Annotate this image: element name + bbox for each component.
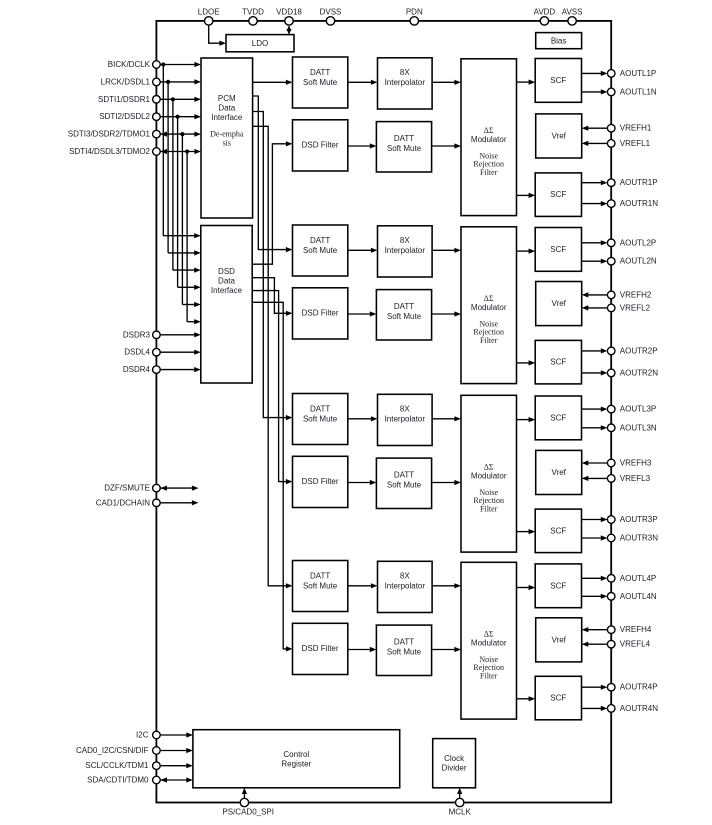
- svg-text:AOUTL1P: AOUTL1P: [620, 69, 656, 78]
- svg-text:Soft Mute: Soft Mute: [387, 480, 422, 489]
- svg-text:Interpolator: Interpolator: [385, 415, 426, 424]
- svg-text:Soft Mute: Soft Mute: [303, 246, 338, 255]
- svg-text:BICK/DCLK: BICK/DCLK: [108, 60, 151, 69]
- svg-text:Modulator: Modulator: [471, 471, 507, 480]
- svg-text:VREFH1: VREFH1: [620, 124, 652, 133]
- svg-text:VREFL2: VREFL2: [620, 303, 651, 312]
- svg-text:DATT: DATT: [394, 134, 414, 143]
- svg-text:AOUTL4P: AOUTL4P: [620, 574, 656, 583]
- svg-text:VDD18: VDD18: [276, 8, 302, 17]
- svg-text:Data: Data: [218, 104, 235, 113]
- svg-text:DZF/SMUTE: DZF/SMUTE: [104, 484, 150, 493]
- svg-text:VREFH4: VREFH4: [620, 625, 652, 634]
- svg-text:SDTI3/DSDR2/TDMO1: SDTI3/DSDR2/TDMO1: [68, 130, 151, 139]
- svg-text:Filter: Filter: [480, 671, 498, 680]
- svg-text:DSD: DSD: [218, 267, 235, 276]
- svg-text:DSDR3: DSDR3: [123, 330, 151, 339]
- svg-text:Vref: Vref: [552, 131, 567, 140]
- svg-text:Soft Mute: Soft Mute: [387, 144, 422, 153]
- svg-text:DSD Filter: DSD Filter: [302, 309, 339, 318]
- svg-text:DSD Filter: DSD Filter: [302, 477, 339, 486]
- svg-text:Interpolator: Interpolator: [385, 246, 426, 255]
- svg-text:sis: sis: [223, 138, 231, 147]
- svg-text:SCF: SCF: [550, 76, 566, 85]
- svg-text:DSD Filter: DSD Filter: [302, 644, 339, 653]
- svg-text:SCF: SCF: [550, 581, 566, 590]
- svg-text:DSDL4: DSDL4: [124, 348, 150, 357]
- svg-text:SCF: SCF: [550, 694, 566, 703]
- svg-text:Interface: Interface: [211, 286, 243, 295]
- svg-text:8X: 8X: [400, 405, 410, 414]
- svg-text:8X: 8X: [400, 68, 410, 77]
- svg-text:MCLK: MCLK: [449, 808, 472, 817]
- svg-text:VREFL4: VREFL4: [620, 640, 651, 649]
- svg-text:DVSS: DVSS: [320, 8, 342, 17]
- svg-text:DSDR4: DSDR4: [123, 365, 151, 374]
- svg-text:SCF: SCF: [550, 358, 566, 367]
- svg-text:DATT: DATT: [310, 405, 330, 414]
- svg-text:Data: Data: [218, 277, 235, 286]
- svg-text:DATT: DATT: [394, 302, 414, 311]
- svg-text:Modulator: Modulator: [471, 303, 507, 312]
- svg-text:AOUTR4P: AOUTR4P: [620, 683, 658, 692]
- svg-text:De-empha: De-empha: [210, 129, 244, 138]
- svg-text:Vref: Vref: [552, 468, 567, 477]
- svg-text:VREFL1: VREFL1: [620, 139, 651, 148]
- svg-text:DATT: DATT: [310, 68, 330, 77]
- svg-text:ΔΣ: ΔΣ: [484, 630, 494, 639]
- svg-text:Divider: Divider: [442, 763, 467, 772]
- svg-text:Soft Mute: Soft Mute: [387, 647, 422, 656]
- svg-text:Filter: Filter: [480, 336, 498, 345]
- svg-text:LRCK/DSDL1: LRCK/DSDL1: [101, 77, 151, 86]
- svg-text:AOUTR1N: AOUTR1N: [620, 199, 658, 208]
- svg-text:Clock: Clock: [444, 754, 465, 763]
- svg-text:ΔΣ: ΔΣ: [484, 126, 494, 135]
- svg-text:ΔΣ: ΔΣ: [484, 294, 494, 303]
- svg-text:AOUTL1N: AOUTL1N: [620, 87, 657, 96]
- svg-text:Interface: Interface: [211, 113, 243, 122]
- svg-text:SCF: SCF: [550, 190, 566, 199]
- svg-text:SCF: SCF: [550, 245, 566, 254]
- svg-text:SCF: SCF: [550, 413, 566, 422]
- svg-text:DATT: DATT: [394, 471, 414, 480]
- svg-text:SDTI2/DSDL2: SDTI2/DSDL2: [99, 112, 150, 121]
- svg-text:8X: 8X: [400, 236, 410, 245]
- svg-text:CAD1/DCHAIN: CAD1/DCHAIN: [96, 498, 150, 507]
- svg-text:PDN: PDN: [406, 8, 423, 17]
- svg-text:AOUTL2N: AOUTL2N: [620, 257, 657, 266]
- svg-text:AOUTR2N: AOUTR2N: [620, 368, 658, 377]
- svg-text:AVSS: AVSS: [562, 8, 583, 17]
- svg-text:Vref: Vref: [552, 299, 567, 308]
- svg-text:Register: Register: [281, 759, 311, 768]
- svg-text:LDOE: LDOE: [198, 8, 220, 17]
- svg-text:Bias: Bias: [551, 36, 567, 45]
- svg-text:Interpolator: Interpolator: [385, 582, 426, 591]
- svg-text:SCF: SCF: [550, 526, 566, 535]
- svg-text:8X: 8X: [400, 572, 410, 581]
- svg-text:I2C: I2C: [136, 731, 149, 740]
- svg-text:Control: Control: [283, 750, 309, 759]
- svg-text:AOUTR1P: AOUTR1P: [620, 178, 658, 187]
- svg-text:Modulator: Modulator: [471, 135, 507, 144]
- svg-text:TVDD: TVDD: [242, 8, 264, 17]
- svg-text:Soft Mute: Soft Mute: [303, 582, 338, 591]
- svg-text:CAD0_I2C/CSN/DIF: CAD0_I2C/CSN/DIF: [76, 746, 149, 755]
- svg-text:AOUTR3P: AOUTR3P: [620, 515, 658, 524]
- svg-text:VREFL3: VREFL3: [620, 474, 651, 483]
- svg-text:VREFH3: VREFH3: [620, 459, 652, 468]
- svg-text:Filter: Filter: [480, 168, 498, 177]
- svg-text:AOUTL2P: AOUTL2P: [620, 238, 656, 247]
- svg-text:AOUTL4N: AOUTL4N: [620, 592, 657, 601]
- svg-text:SDA/CDTI/TDM0: SDA/CDTI/TDM0: [87, 776, 149, 785]
- svg-text:PCM: PCM: [218, 94, 236, 103]
- svg-text:Soft Mute: Soft Mute: [303, 78, 338, 87]
- svg-text:AOUTR4N: AOUTR4N: [620, 704, 658, 713]
- svg-text:AVDD: AVDD: [534, 8, 556, 17]
- svg-text:Modulator: Modulator: [471, 638, 507, 647]
- svg-text:Filter: Filter: [480, 504, 498, 513]
- svg-text:AOUTL3P: AOUTL3P: [620, 405, 656, 414]
- svg-text:ΔΣ: ΔΣ: [484, 463, 494, 472]
- svg-text:SCL/CCLK/TDM1: SCL/CCLK/TDM1: [85, 761, 149, 770]
- svg-text:DATT: DATT: [394, 638, 414, 647]
- svg-text:Soft Mute: Soft Mute: [303, 415, 338, 424]
- svg-text:DATT: DATT: [310, 236, 330, 245]
- svg-text:AOUTR3N: AOUTR3N: [620, 534, 658, 543]
- svg-text:AOUTR2P: AOUTR2P: [620, 346, 658, 355]
- svg-text:Vref: Vref: [552, 635, 567, 644]
- svg-text:SDTI4/DSDL3/TDMO2: SDTI4/DSDL3/TDMO2: [69, 147, 150, 156]
- svg-text:VREFH2: VREFH2: [620, 290, 652, 299]
- svg-text:DATT: DATT: [310, 572, 330, 581]
- svg-text:SDTI1/DSDR1: SDTI1/DSDR1: [98, 95, 151, 104]
- svg-text:PS/CAD0_SPI: PS/CAD0_SPI: [222, 808, 274, 817]
- svg-text:AOUTL3N: AOUTL3N: [620, 423, 657, 432]
- svg-text:Soft Mute: Soft Mute: [387, 312, 422, 321]
- svg-text:Interpolator: Interpolator: [385, 78, 426, 87]
- svg-text:DSD Filter: DSD Filter: [302, 141, 339, 150]
- svg-text:LDO: LDO: [252, 39, 268, 48]
